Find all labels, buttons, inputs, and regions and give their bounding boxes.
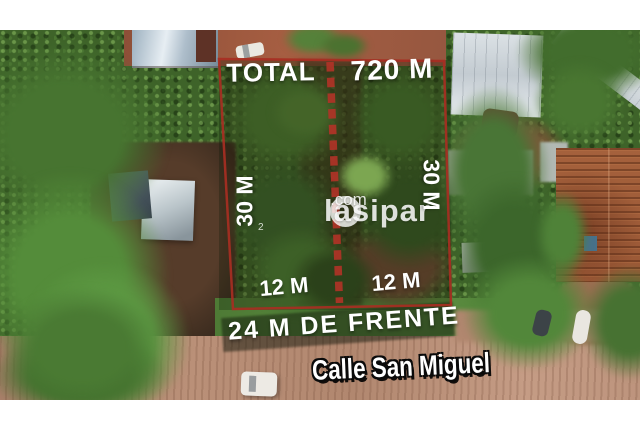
watermark-mark: 2 xyxy=(258,222,264,233)
right-side-dimension: 30 M xyxy=(420,159,443,210)
left-half-frontage: 12 M xyxy=(259,274,310,300)
watermark-suffix: .com xyxy=(330,190,367,210)
left-side-dimension: 30 M xyxy=(234,175,257,226)
plot-boundary-overlay xyxy=(0,30,640,400)
total-area-value: 720 M xyxy=(350,55,434,86)
listing-image: TOTAL 720 M 30 M 30 M 12 M 12 M 24 M DE … xyxy=(0,0,640,427)
total-label: TOTAL xyxy=(226,58,316,86)
aerial-photo: TOTAL 720 M 30 M 30 M 12 M 12 M 24 M DE … xyxy=(0,30,640,400)
right-half-frontage: 12 M xyxy=(371,269,422,295)
